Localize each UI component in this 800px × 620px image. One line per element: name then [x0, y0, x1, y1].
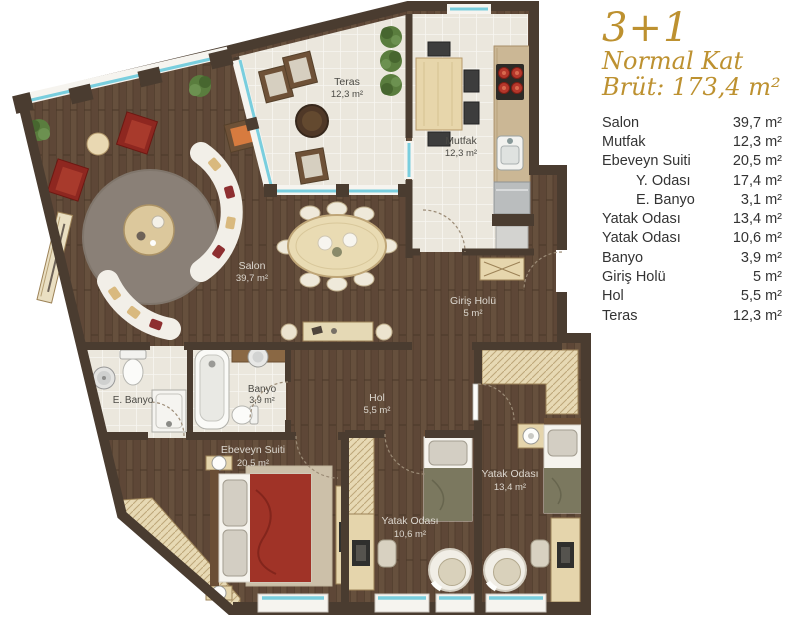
- coffee-table: [124, 205, 174, 255]
- door-leaf: [473, 384, 478, 420]
- papasan-chair: [429, 549, 471, 591]
- legend-area-value: 3,1 m²: [741, 191, 782, 210]
- papasan-chair: [484, 549, 526, 591]
- fridge: [494, 182, 530, 214]
- kitchen-table: [416, 58, 462, 130]
- label-giris-holu-area: 5 m²: [464, 308, 483, 319]
- window-box: [375, 594, 429, 612]
- label-yatak-10-area: 10,6 m²: [394, 529, 426, 540]
- window-box: [258, 594, 328, 612]
- legend-room-label: Banyo: [602, 249, 643, 268]
- legend-room-label: Yatak Odası: [602, 210, 681, 229]
- potted-plant: [380, 74, 402, 96]
- kitchen-chair: [428, 42, 450, 56]
- stool: [281, 324, 297, 340]
- label-giris-holu: Giriş Holü: [450, 295, 496, 307]
- desk-chair: [378, 540, 396, 567]
- floor-plan: Salon 39,7 m² Teras 12,3 m² Mutfak 12,3 …: [0, 0, 600, 615]
- legend-row: Y. Odası 17,4 m²: [602, 172, 782, 191]
- terrace-chair: [295, 148, 328, 184]
- label-yatak-13: Yatak Odası: [481, 468, 538, 480]
- label-teras: Teras: [334, 76, 360, 88]
- label-teras-area: 12,3 m²: [331, 89, 363, 100]
- single-bed: [424, 430, 472, 521]
- legend-row: Yatak Odası 10,6 m²: [602, 229, 782, 248]
- kitchen-chair: [464, 102, 479, 124]
- toilet: [232, 406, 258, 424]
- label-mutfak-area: 12,3 m²: [445, 148, 477, 159]
- kitchen-sink: [497, 136, 523, 170]
- gross-area-title: Brüt: 173,4 m²: [602, 75, 782, 101]
- title-block: 3+1 Normal Kat Brüt: 173,4 m²: [602, 8, 782, 101]
- bedside-lamp: [212, 456, 226, 470]
- legend-row: Banyo 3,9 m²: [602, 249, 782, 268]
- floor-plan-drawing: Salon 39,7 m² Teras 12,3 m² Mutfak 12,3 …: [0, 0, 600, 615]
- legend-room-label: Teras: [602, 307, 637, 326]
- label-yatak-10: Yatak Odası: [381, 515, 438, 527]
- bathtub: [195, 349, 229, 429]
- legend-room-label: Salon: [602, 114, 639, 133]
- potted-plant: [380, 50, 402, 72]
- entry-hall-furniture: [480, 258, 524, 280]
- legend-area-value: 10,6 m²: [733, 229, 782, 248]
- legend-room-label: Yatak Odası: [602, 229, 681, 248]
- label-banyo: Banyo: [248, 384, 277, 395]
- legend-row: Mutfak 12,3 m²: [602, 133, 782, 152]
- legend-room-label: Ebeveyn Suiti: [602, 152, 691, 171]
- legend-area-value: 39,7 m²: [733, 114, 782, 133]
- label-hol-area: 5,5 m²: [364, 405, 391, 416]
- window-box: [486, 594, 546, 612]
- legend-room-label: Hol: [602, 287, 624, 306]
- info-panel: 3+1 Normal Kat Brüt: 173,4 m² Salon 39,7…: [602, 8, 782, 326]
- label-ebeveyn: Ebeveyn Suiti: [221, 444, 285, 456]
- legend-room-label: Giriş Holü: [602, 268, 666, 287]
- legend-area-value: 3,9 m²: [741, 249, 782, 268]
- legend-area-value: 5,5 m²: [741, 287, 782, 306]
- label-yatak-13-area: 13,4 m²: [494, 482, 526, 493]
- legend-room-label: Y. Odası: [602, 172, 691, 191]
- legend-area-value: 13,4 m²: [733, 210, 782, 229]
- label-hol: Hol: [369, 392, 385, 404]
- label-mutfak: Mutfak: [445, 135, 477, 147]
- stool: [376, 324, 392, 340]
- legend-area-value: 5 m²: [753, 268, 782, 287]
- single-bed: [544, 418, 581, 513]
- stove-icon: [496, 64, 524, 100]
- label-salon: Salon: [239, 260, 266, 272]
- label-e-banyo: E. Banyo: [113, 395, 154, 406]
- plan-type-title: 3+1: [602, 8, 782, 49]
- label-salon-area: 39,7 m²: [236, 273, 268, 284]
- legend-area-value: 12,3 m²: [733, 133, 782, 152]
- potted-plant: [380, 26, 402, 48]
- legend-room-label: Mutfak: [602, 133, 646, 152]
- shower: [152, 390, 186, 432]
- entry-door-opening: [556, 250, 568, 292]
- kitchen-chair: [464, 70, 479, 92]
- area-table: Salon 39,7 m² Mutfak 12,3 m² Ebeveyn Sui…: [602, 114, 782, 326]
- legend-area-value: 20,5 m²: [733, 152, 782, 171]
- desk-chair: [531, 540, 549, 567]
- legend-area-value: 17,4 m²: [733, 172, 782, 191]
- window-box: [436, 594, 474, 612]
- label-ebeveyn-area: 20,5 m²: [237, 458, 269, 469]
- double-bed: [210, 470, 311, 586]
- potted-plant: [189, 75, 211, 97]
- shaft-box: [496, 226, 528, 250]
- legend-row: Hol 5,5 m²: [602, 287, 782, 306]
- legend-area-value: 12,3 m²: [733, 307, 782, 326]
- legend-row: Salon 39,7 m²: [602, 114, 782, 133]
- legend-row: Yatak Odası 13,4 m²: [602, 210, 782, 229]
- side-table: [87, 133, 109, 155]
- floor-title: Normal Kat: [602, 49, 782, 75]
- legend-row: Teras 12,3 m²: [602, 307, 782, 326]
- legend-room-label: E. Banyo: [602, 191, 695, 210]
- label-banyo-area: 3,9 m²: [249, 395, 275, 405]
- legend-row: Giriş Holü 5 m²: [602, 268, 782, 287]
- legend-row: Ebeveyn Suiti 20,5 m²: [602, 152, 782, 171]
- legend-row: E. Banyo 3,1 m²: [602, 191, 782, 210]
